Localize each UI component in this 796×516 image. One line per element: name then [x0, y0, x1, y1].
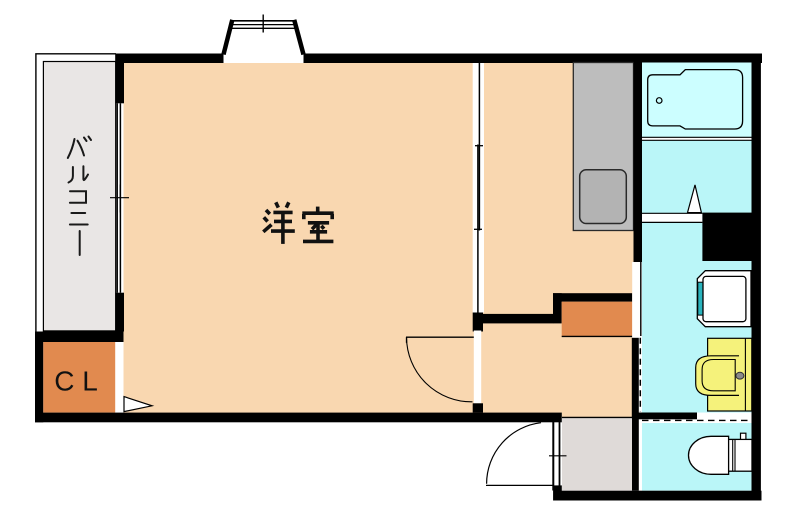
svg-text:C L: C L — [54, 365, 98, 396]
